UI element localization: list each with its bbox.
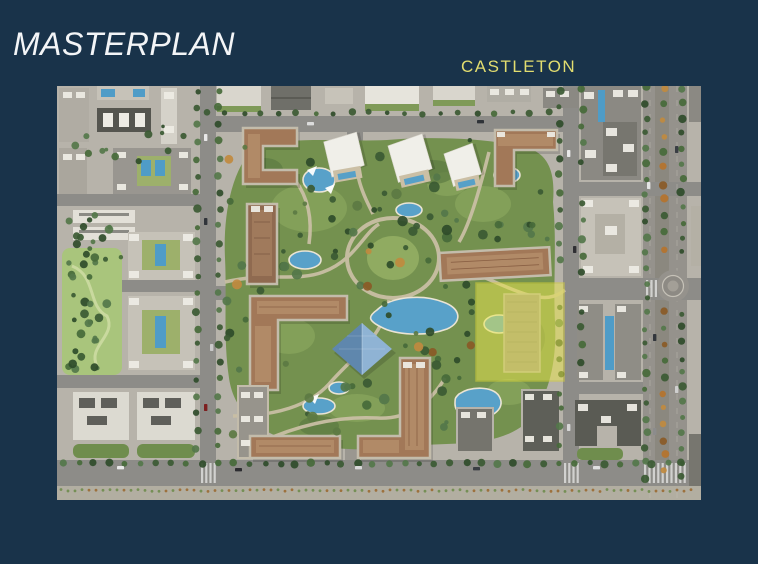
slide: MASTERPLAN CASTLETON — [0, 0, 758, 564]
masterplan-aerial-image — [57, 86, 701, 500]
east-residential-bar — [439, 247, 550, 281]
garden-block — [62, 248, 122, 375]
courtyard-building — [128, 296, 195, 370]
roundabout — [657, 270, 689, 302]
castleton-plot-highlight — [476, 283, 564, 381]
castleton-label: CASTLETON — [461, 57, 576, 77]
slide-title: MASTERPLAN — [13, 26, 235, 63]
